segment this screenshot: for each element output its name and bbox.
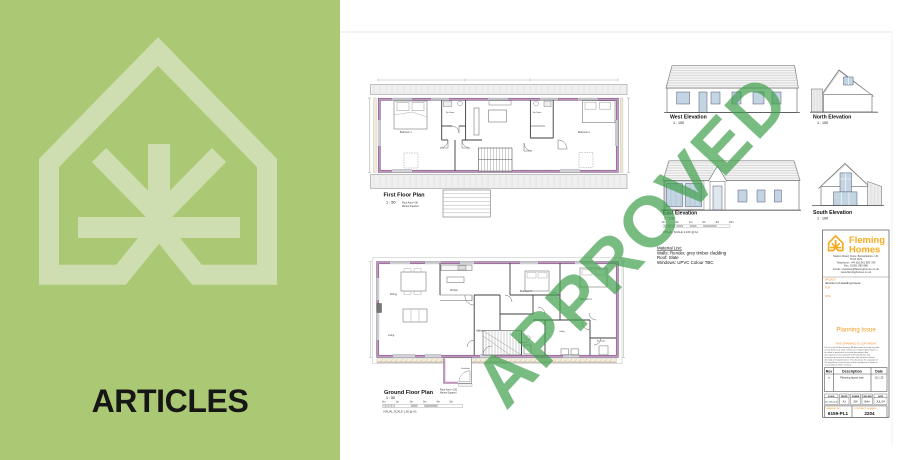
- svg-text:Living: Living: [388, 334, 395, 337]
- svg-text:in part without written consen: in part without written consent.: [825, 364, 852, 367]
- svg-text:1 : 100: 1 : 100: [673, 121, 684, 125]
- svg-text:PAPER: PAPER: [841, 395, 848, 398]
- svg-text:DATE: DATE: [878, 395, 884, 398]
- svg-text:www.fleminghomes.co.uk: www.fleminghomes.co.uk: [841, 270, 872, 274]
- svg-text:Metres Squared: Metres Squared: [440, 392, 457, 395]
- svg-text:1m: 1m: [396, 400, 399, 403]
- svg-text:En-Suite: En-Suite: [533, 111, 542, 114]
- svg-text:First Floor Plan: First Floor Plan: [384, 193, 426, 199]
- svg-text:6159-PL1: 6159-PL1: [828, 411, 849, 416]
- svg-text:ZW: ZW: [853, 400, 858, 404]
- svg-text:Erection of dwelling house: Erection of dwelling house: [826, 281, 861, 285]
- svg-text:THIS DRAWING IS COPYRIGHT: THIS DRAWING IS COPYRIGHT: [835, 342, 877, 346]
- svg-text:1 : 50: 1 : 50: [386, 201, 396, 205]
- svg-text:5m: 5m: [450, 400, 453, 403]
- svg-text:DRAWN: DRAWN: [852, 395, 860, 398]
- svg-text:1 : 100: 1 : 100: [817, 217, 828, 221]
- svg-text:1 : 100: 1 : 100: [817, 121, 828, 125]
- svg-text:3m: 3m: [423, 400, 426, 403]
- svg-text:FOR: FOR: [825, 287, 830, 290]
- svg-text:CONTRACT NUMBER: CONTRACT NUMBER: [854, 407, 877, 410]
- svg-text:DRAWING NO.: DRAWING NO.: [826, 407, 841, 410]
- svg-text:As indicated: As indicated: [825, 400, 838, 403]
- svg-text:BAe: BAe: [865, 400, 871, 404]
- svg-text:0m: 0m: [382, 400, 385, 403]
- svg-text:Dining: Dining: [390, 293, 397, 296]
- svg-text:Date: Date: [875, 370, 883, 374]
- svg-text:2m: 2m: [410, 400, 413, 403]
- svg-text:Metres Squared: Metres Squared: [402, 205, 419, 208]
- svg-text:SCALE: SCALE: [828, 395, 835, 398]
- svg-text:JUL/24: JUL/24: [876, 400, 885, 404]
- svg-text:1 : 50: 1 : 50: [386, 396, 395, 400]
- svg-text:North Elevation: North Elevation: [813, 115, 851, 121]
- svg-text:16.1.25: 16.1.25: [875, 376, 884, 380]
- svg-text:2204: 2204: [864, 411, 875, 416]
- svg-text:4m: 4m: [437, 400, 440, 403]
- svg-text:Bedroom 2: Bedroom 2: [578, 131, 590, 134]
- svg-text:Planning Issue: Planning Issue: [836, 328, 876, 334]
- svg-text:Planning layout note: Planning layout note: [840, 376, 864, 380]
- svg-text:8m: 8m: [716, 221, 719, 224]
- svg-text:Description: Description: [842, 370, 862, 374]
- svg-text:Kitchen: Kitchen: [450, 289, 459, 292]
- svg-text:Rev: Rev: [826, 370, 833, 374]
- svg-text:South Elevation: South Elevation: [813, 210, 852, 216]
- svg-text:Floor Area = 150: Floor Area = 150: [440, 389, 458, 392]
- svg-text:En-Suite: En-Suite: [446, 111, 455, 114]
- svg-text:A1: A1: [842, 400, 846, 404]
- svg-text:Floor Area = 96: Floor Area = 96: [402, 202, 418, 205]
- svg-text:VISUAL SCALE 1:50 @ A1: VISUAL SCALE 1:50 @ A1: [383, 410, 417, 414]
- svg-text:Homes: Homes: [849, 243, 880, 254]
- svg-text:SITE: SITE: [825, 295, 831, 298]
- svg-text:En-Suite: En-Suite: [597, 339, 606, 342]
- svg-text:10m: 10m: [729, 221, 734, 224]
- svg-text:Bedroom 1: Bedroom 1: [400, 131, 412, 134]
